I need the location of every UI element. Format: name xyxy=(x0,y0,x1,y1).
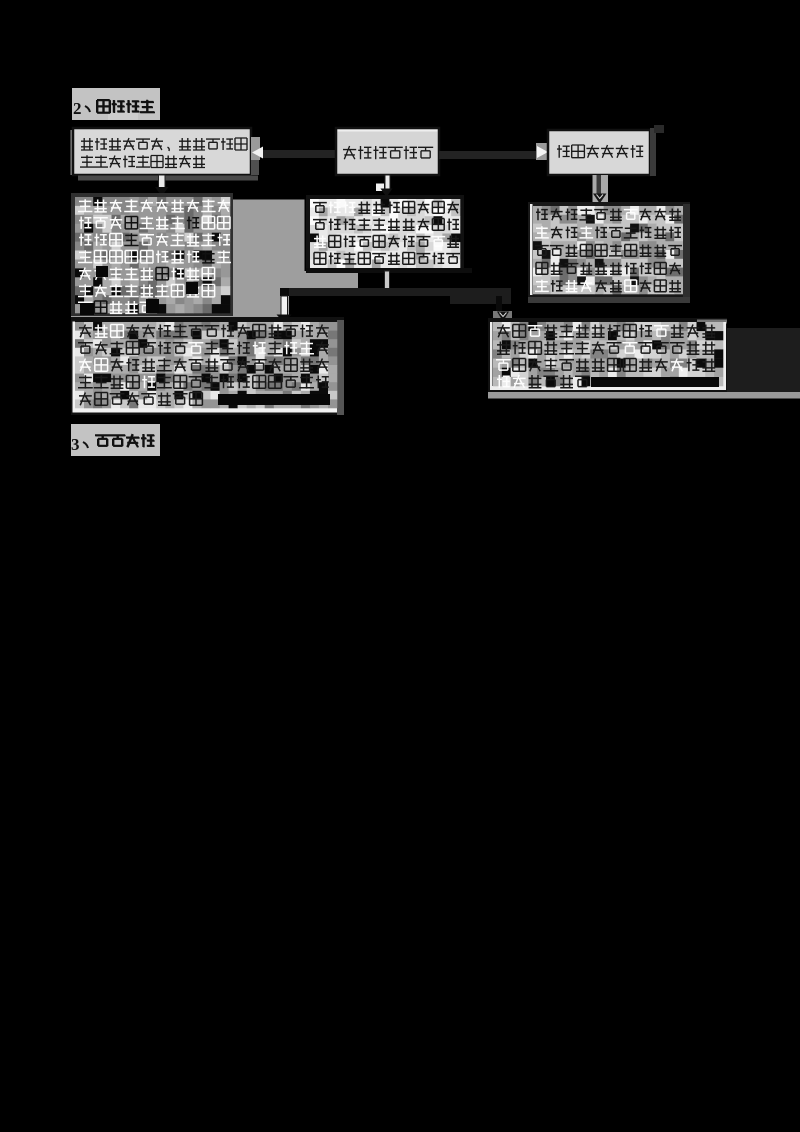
svg-text:3: 3 xyxy=(71,435,80,454)
svg-text:2: 2 xyxy=(73,99,82,118)
